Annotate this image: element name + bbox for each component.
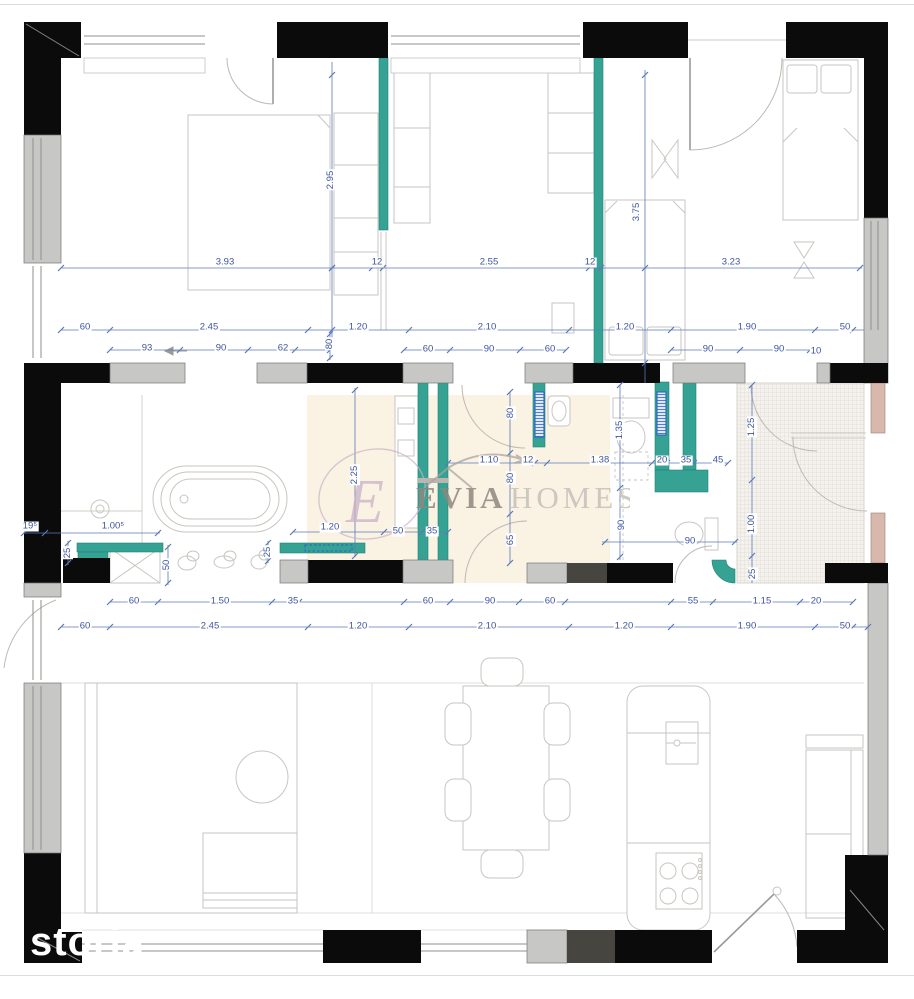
sofa-area <box>85 683 297 913</box>
plant-icon <box>794 242 814 278</box>
wc-door-arc <box>675 546 712 583</box>
round-table <box>236 751 288 803</box>
coffee-table <box>203 833 297 908</box>
curved-wall <box>712 560 735 583</box>
entrance-door-leaf <box>714 894 774 952</box>
chair <box>445 779 471 821</box>
radiator <box>657 392 666 435</box>
kitchen-furniture <box>627 686 863 930</box>
plants-icon <box>178 550 269 570</box>
bedroom1-furniture <box>188 113 386 330</box>
bedroom2-furniture <box>394 71 594 333</box>
wardrobe <box>548 73 594 193</box>
double-bed <box>188 115 330 290</box>
dining-furniture <box>445 658 570 878</box>
toilet-tank <box>613 398 649 418</box>
chair <box>544 779 570 821</box>
evia-homes-watermark: E EVIA HOMES <box>300 430 630 560</box>
shower-screen <box>61 395 142 543</box>
plant-icon <box>652 140 678 178</box>
toilet-tank <box>705 518 718 550</box>
closet <box>394 71 430 187</box>
photo-credit-watermark: storia <box>30 920 145 965</box>
chair <box>544 703 570 745</box>
living-room-furniture <box>85 683 297 913</box>
floor-drain <box>91 500 109 518</box>
chair <box>481 850 523 878</box>
brand-name-bold: EVIA <box>416 480 506 515</box>
brand-name-light: HOMES <box>510 480 630 515</box>
page-bottom-divider <box>0 975 914 976</box>
balcony-door-arc <box>4 600 56 668</box>
dining-table <box>463 686 549 850</box>
chair <box>445 703 471 745</box>
opening-arrow-icon <box>165 347 187 355</box>
floor-plan-page: E EVIA HOMES 3.93122.55123.232.953.75602… <box>0 0 914 999</box>
toilet <box>675 522 703 546</box>
chair <box>481 658 523 686</box>
shelf <box>806 735 863 748</box>
terrace-floor <box>737 383 866 583</box>
bedroom3-furniture <box>605 60 858 360</box>
brand-initial: E <box>345 468 384 536</box>
